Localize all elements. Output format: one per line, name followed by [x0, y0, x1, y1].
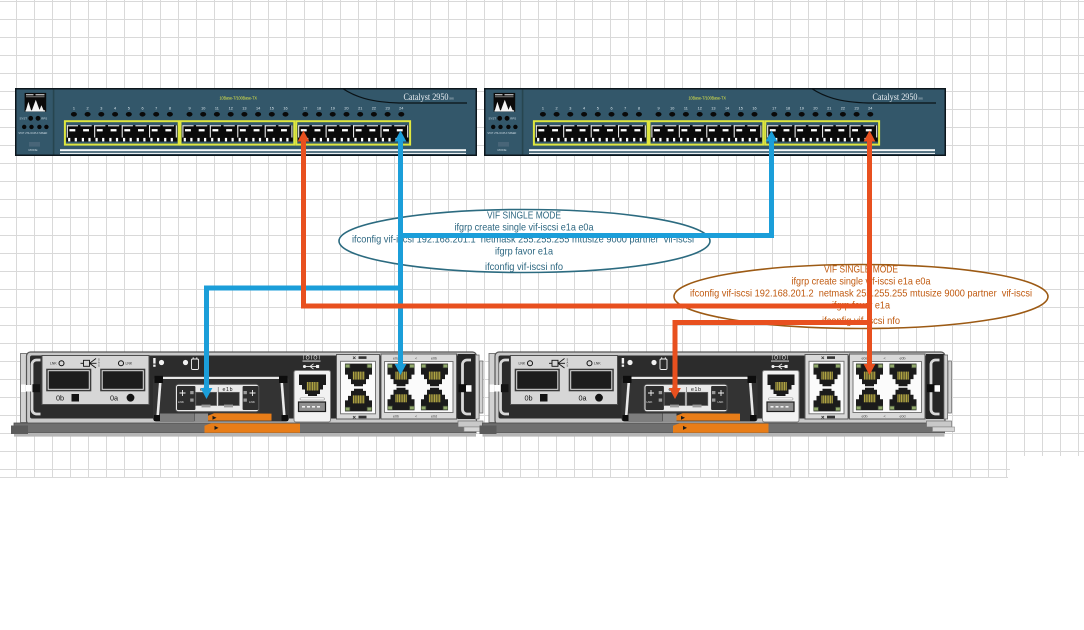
svg-text:ifgrp create single vif-iscsi: ifgrp create single vif-iscsi e1a e0a	[792, 277, 931, 288]
svg-text:VIF SINGLE MODE: VIF SINGLE MODE	[487, 211, 561, 222]
svg-text:ifgrp favor e1a: ifgrp favor e1a	[495, 247, 553, 258]
svg-text:ifgrp create single vif-iscsi: ifgrp create single vif-iscsi e1a e0a	[455, 223, 594, 234]
svg-text:ifconfig vif-iscsi nfo: ifconfig vif-iscsi nfo	[485, 262, 563, 273]
svg-text:ifconfig vif-iscsi 192.168.201: ifconfig vif-iscsi 192.168.201.2 netmask…	[690, 289, 1032, 300]
svg-text:VIF SINGLE MODE: VIF SINGLE MODE	[824, 265, 898, 276]
